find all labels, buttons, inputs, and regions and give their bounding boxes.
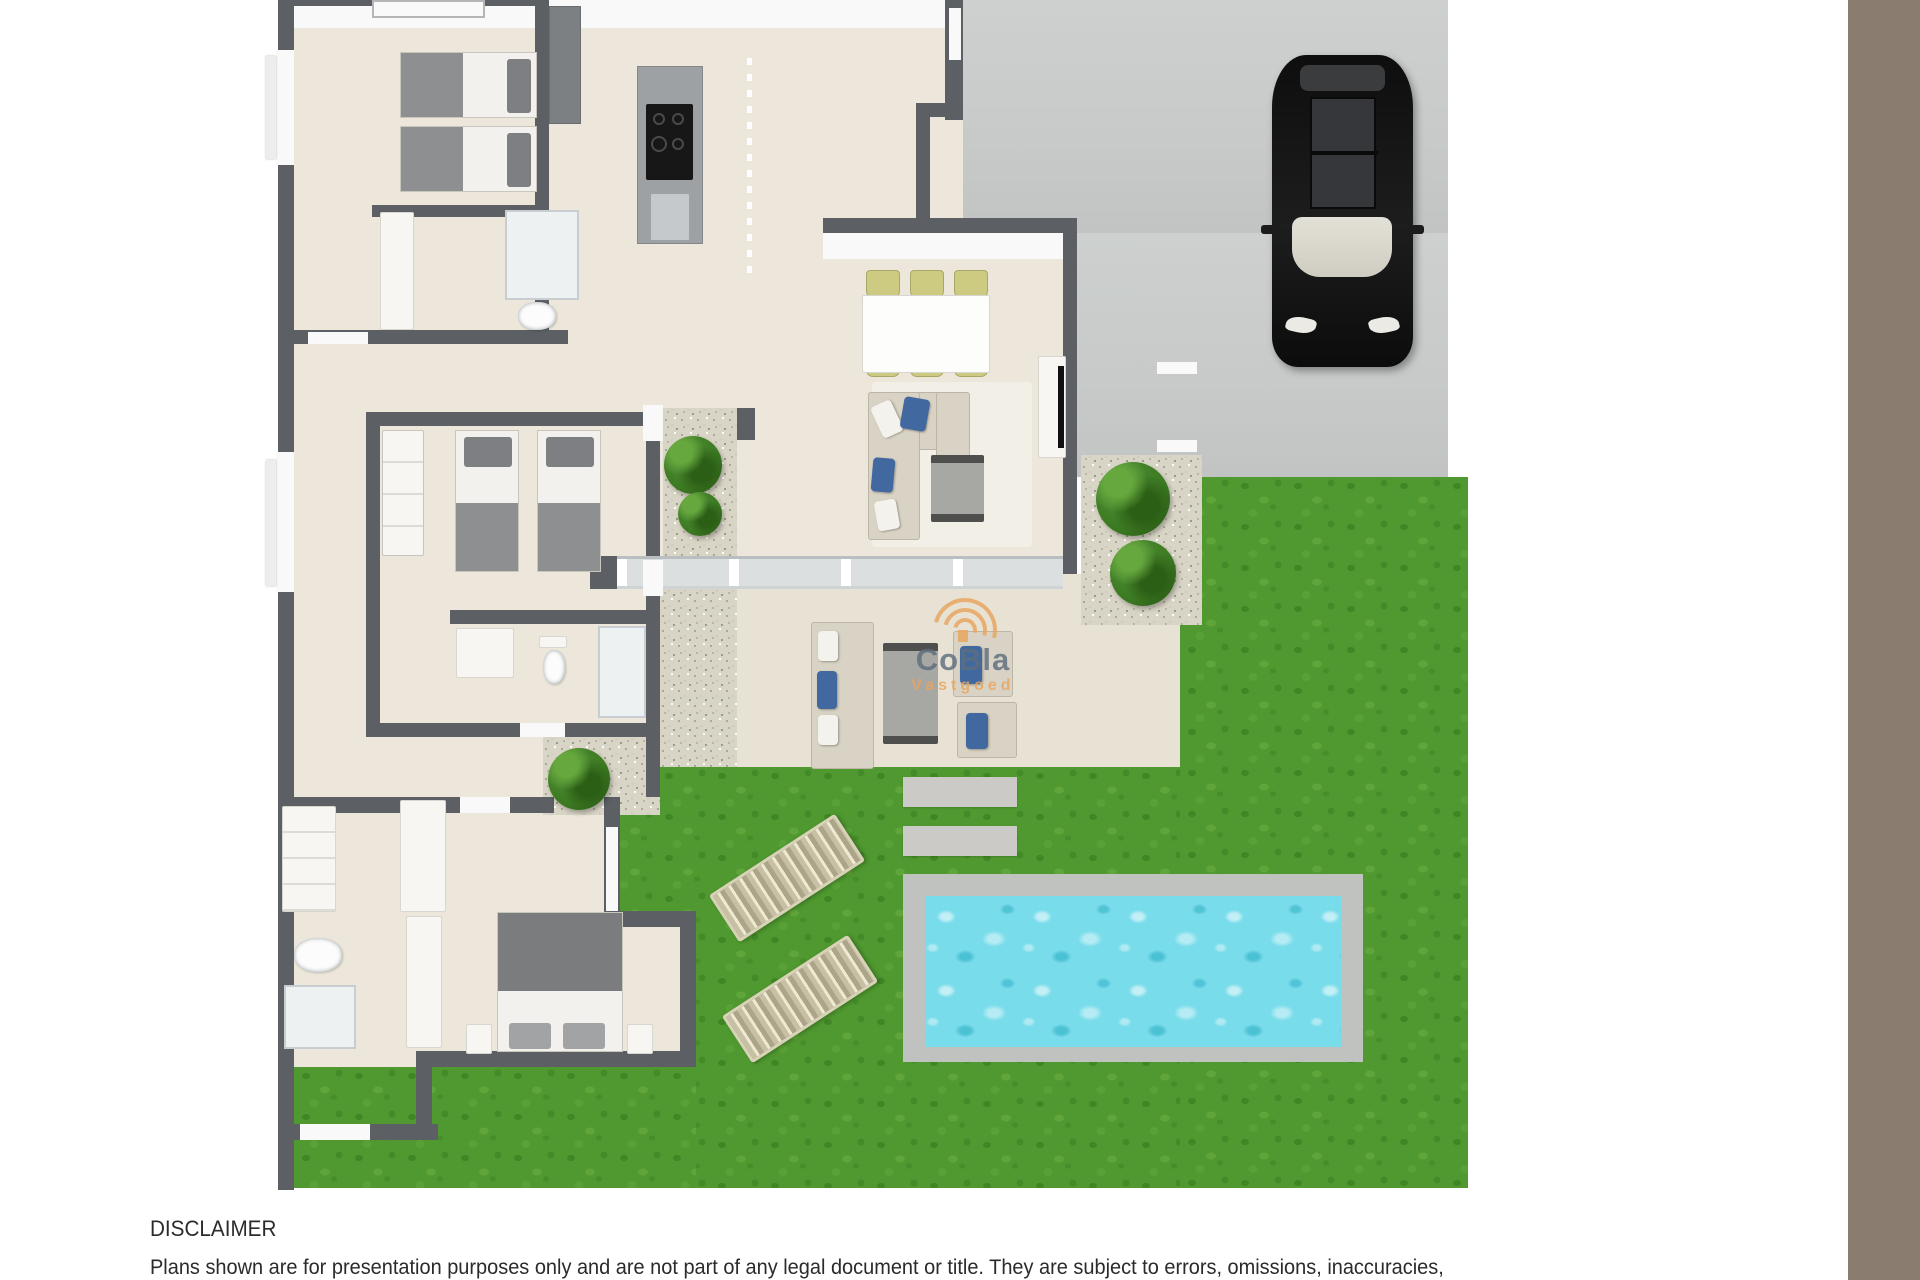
bath1-shower [505, 210, 579, 300]
wall-bedroom2-left [366, 412, 380, 737]
floor-hall [294, 737, 543, 797]
watermark: CoBla Vastgoed [893, 596, 1033, 696]
wall-dining-north-cap [823, 233, 1077, 259]
car-sunroof [1310, 97, 1376, 209]
bath1-toilet [518, 302, 556, 330]
bath2-shower [598, 626, 646, 718]
window-left-2-sill [266, 460, 276, 586]
kitchen-sink [649, 192, 691, 242]
car-mirror-left [1261, 225, 1277, 234]
bath3-counter [406, 916, 442, 1048]
nightstand [627, 1024, 653, 1054]
closet-bedroom3-a [282, 806, 336, 912]
wardrobe-bedroom2 [382, 430, 424, 556]
sliding-glass-doors [617, 556, 1063, 589]
bath2-toilet-tank [539, 636, 567, 648]
window-bedroom3 [606, 827, 618, 911]
bath2-sink [456, 628, 514, 678]
planter-edge-4 [1157, 440, 1197, 452]
bed-single-1 [400, 52, 537, 118]
car-windshield [1292, 217, 1392, 277]
wall-bedroom2-top [366, 412, 660, 426]
bush [1110, 540, 1176, 606]
gravel-patio-strip [660, 589, 737, 767]
bed-single-4 [537, 430, 601, 572]
dining-chair [954, 270, 988, 298]
sofa-pillow [871, 457, 896, 493]
watermark-brand: CoBla [893, 644, 1033, 675]
dining-chair [866, 270, 900, 298]
bath3-toilet [294, 938, 342, 972]
lawn-right [1180, 477, 1468, 1188]
bush [548, 748, 610, 810]
swimming-pool [925, 896, 1341, 1047]
closet-bedroom3-b [400, 800, 446, 912]
bush [1096, 462, 1170, 536]
wall-dining-north [823, 218, 1077, 233]
door-bath3 [300, 1124, 370, 1140]
courtyard-post [737, 408, 755, 440]
sofa-pillow [899, 396, 930, 432]
bed-single-3 [455, 430, 519, 572]
door-hall [308, 332, 368, 344]
bath3-shower [284, 985, 356, 1049]
planter-edge-1 [643, 405, 663, 441]
bath2-toilet [543, 650, 565, 684]
car-mirror-right [1408, 225, 1424, 234]
window-left-2 [276, 452, 294, 592]
skylight [372, 0, 485, 18]
wall-bedroom3-right [680, 911, 696, 1067]
tv-screen [1058, 366, 1064, 448]
dining-table [862, 295, 990, 373]
wall-bedroom2-bottom [366, 723, 660, 737]
watermark-arcs-icon [931, 596, 995, 642]
threshold-dotted-line [747, 58, 752, 280]
bush [664, 436, 722, 494]
door-bedroom3 [460, 797, 510, 813]
bush [678, 492, 722, 536]
wardrobe-bedroom1 [549, 6, 581, 124]
watermark-subtitle: Vastgoed [893, 676, 1033, 695]
window-left-1 [276, 50, 294, 165]
planter-edge-3 [1157, 362, 1197, 374]
wall-bath2-divider [450, 610, 660, 624]
planter-edge-2 [643, 560, 663, 596]
cooktop [646, 104, 693, 180]
disclaimer-title: DISCLAIMER [150, 1216, 276, 1242]
car [1272, 55, 1413, 367]
bed-double [497, 912, 623, 1052]
bath1-counter [380, 212, 414, 330]
disclaimer-body: Plans shown are for presentation purpose… [150, 1256, 1765, 1280]
dining-chair [910, 270, 944, 298]
page-margin-strip [1848, 0, 1920, 1280]
wall-entry-jog-v [916, 103, 930, 232]
bed-single-2 [400, 126, 537, 192]
floor-plan-page: CoBla Vastgoed DISCLAIMER Plans shown ar… [0, 0, 1920, 1280]
paving-pad [903, 777, 1017, 807]
window-left-1-sill [266, 56, 276, 159]
door-front [949, 8, 961, 60]
car-rear-window [1300, 65, 1385, 91]
outdoor-sofa [811, 622, 874, 769]
outdoor-armchair [957, 702, 1017, 758]
wall-exterior-mid-right [646, 412, 660, 797]
nightstand [466, 1024, 492, 1054]
door-bedroom2 [520, 723, 565, 737]
coffee-table [931, 455, 984, 522]
paving-pad [903, 826, 1017, 856]
